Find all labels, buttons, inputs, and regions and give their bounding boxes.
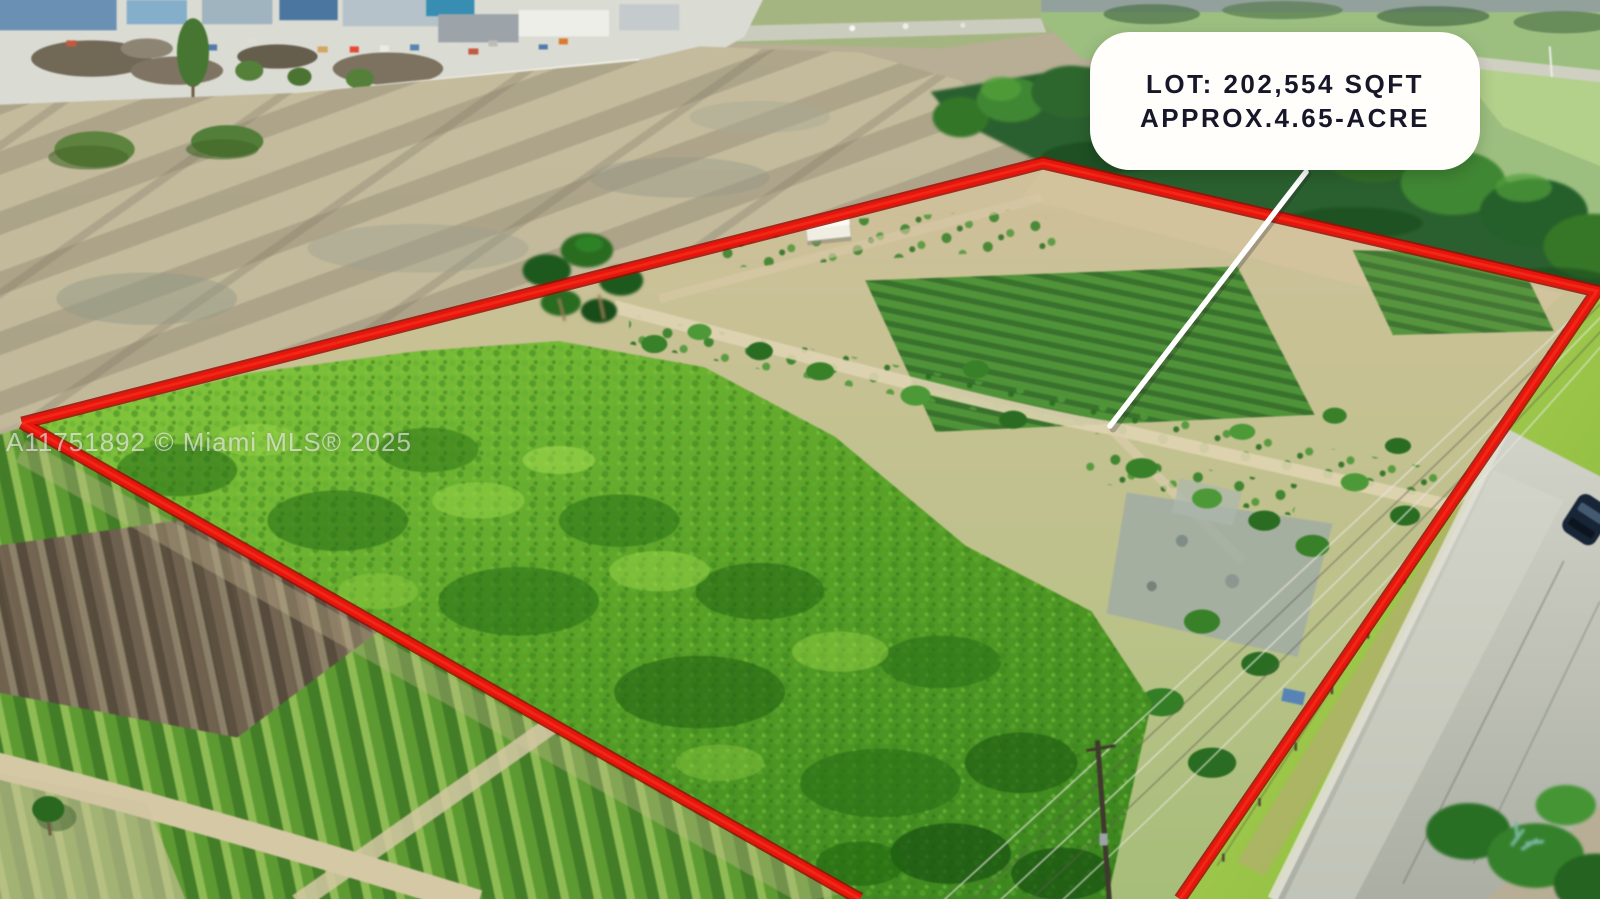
lot-sqft-label: LOT: 202,554 SQFT bbox=[1146, 71, 1424, 98]
lot-boundary-outline bbox=[22, 163, 1597, 899]
lot-size-callout: LOT: 202,554 SQFT APPROX.4.65-ACRE bbox=[1090, 32, 1480, 170]
aerial-property-photo: LOT: 202,554 SQFT APPROX.4.65-ACRE A1175… bbox=[0, 0, 1600, 899]
boundary-main-stroke bbox=[22, 163, 1597, 899]
mls-watermark: A11751892 © Miami MLS® 2025 bbox=[6, 427, 412, 458]
lot-acre-label: APPROX.4.65-ACRE bbox=[1140, 105, 1430, 132]
callout-leader-line bbox=[1110, 172, 1308, 429]
